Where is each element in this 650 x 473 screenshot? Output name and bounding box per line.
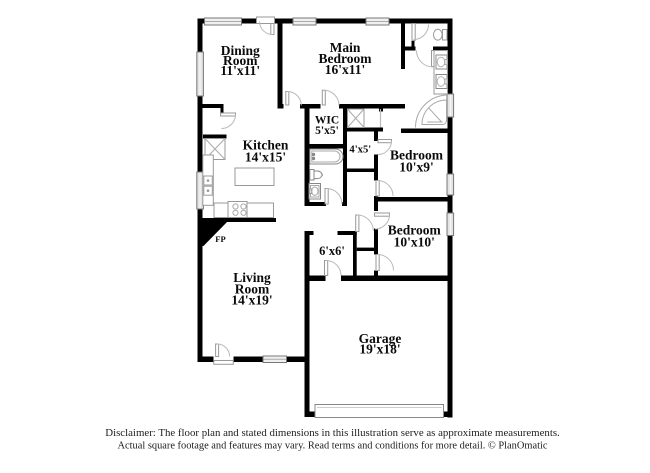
svg-text:10'x9': 10'x9' bbox=[399, 160, 434, 175]
svg-text:16'x11': 16'x11' bbox=[325, 62, 366, 77]
svg-text:Actual square footage and feat: Actual square footage and features may v… bbox=[118, 440, 548, 451]
svg-text:5'x5': 5'x5' bbox=[315, 125, 339, 137]
svg-text:FP: FP bbox=[215, 234, 225, 244]
svg-text:11'x11': 11'x11' bbox=[220, 63, 260, 78]
svg-text:14'x15': 14'x15' bbox=[245, 150, 286, 165]
svg-text:4'x5': 4'x5' bbox=[349, 145, 371, 156]
svg-text:Disclaimer: The floor plan and: Disclaimer: The floor plan and stated di… bbox=[105, 427, 560, 439]
svg-text:19'x18': 19'x18' bbox=[359, 342, 400, 357]
svg-text:10'x10': 10'x10' bbox=[394, 235, 435, 250]
svg-text:6'x6': 6'x6' bbox=[319, 244, 345, 258]
svg-text:14'x19': 14'x19' bbox=[231, 293, 272, 308]
